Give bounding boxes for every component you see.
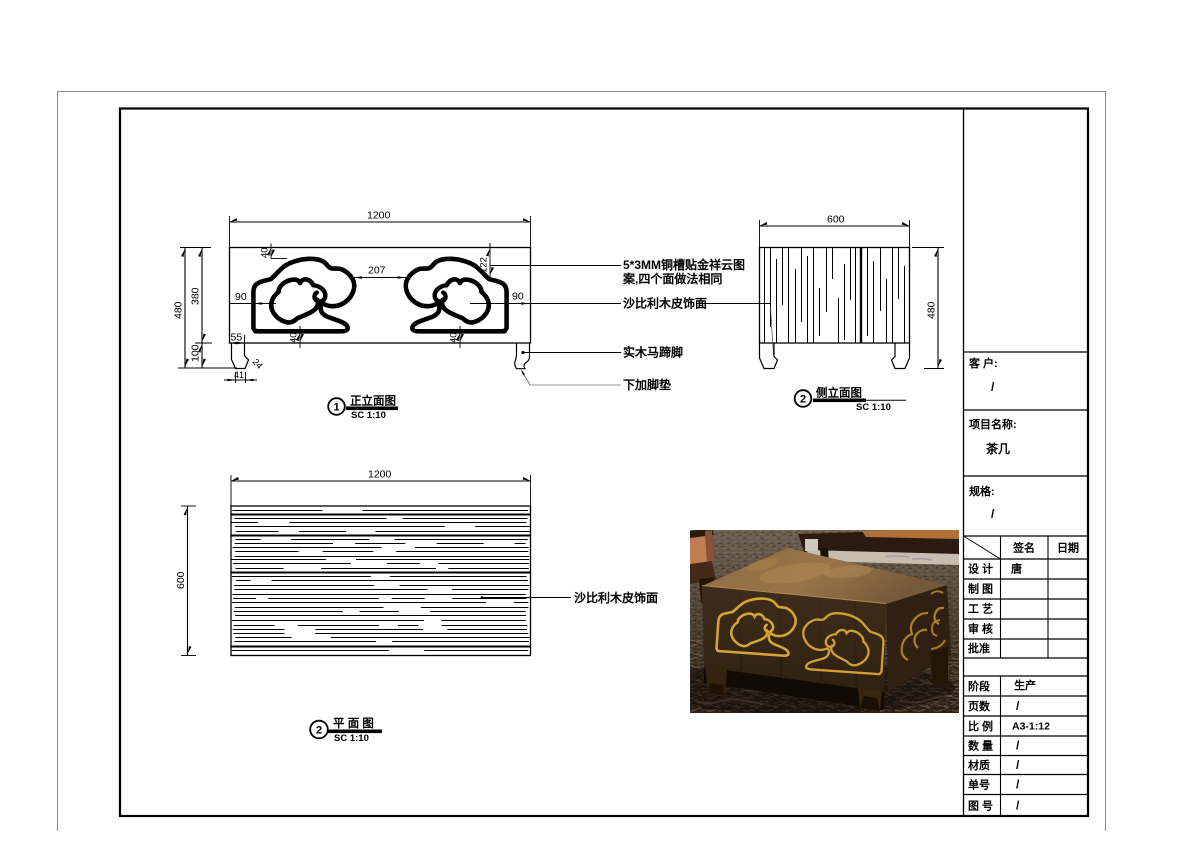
svg-text:侧立面图: 侧立面图 xyxy=(816,386,862,400)
svg-text:正立面图: 正立面图 xyxy=(350,394,396,408)
svg-text:480: 480 xyxy=(173,301,185,319)
svg-text:A3-1:12: A3-1:12 xyxy=(1012,721,1050,733)
svg-text:40: 40 xyxy=(449,332,460,343)
svg-text:沙比利木皮饰面: 沙比利木皮饰面 xyxy=(623,296,707,311)
svg-text:比 例: 比 例 xyxy=(968,719,993,733)
svg-text:1200: 1200 xyxy=(367,210,391,222)
svg-text:/: / xyxy=(991,380,995,394)
svg-text:页数: 页数 xyxy=(968,699,991,713)
svg-text:90: 90 xyxy=(235,291,247,303)
svg-text:下加脚垫: 下加脚垫 xyxy=(623,377,671,392)
svg-text:55: 55 xyxy=(231,332,243,344)
svg-text:90: 90 xyxy=(512,291,524,303)
svg-text:规格:: 规格: xyxy=(969,484,995,498)
svg-text:日期: 日期 xyxy=(1057,541,1079,555)
svg-text:380: 380 xyxy=(190,287,202,305)
svg-text:审 核: 审 核 xyxy=(968,622,993,636)
svg-text:数 量: 数 量 xyxy=(968,739,993,753)
svg-text:签名: 签名 xyxy=(1012,541,1035,555)
svg-text:工 艺: 工 艺 xyxy=(968,602,993,616)
svg-text:实木马蹄脚: 实木马蹄脚 xyxy=(623,345,683,360)
svg-text:41: 41 xyxy=(234,370,244,380)
svg-text:阶段: 阶段 xyxy=(968,679,990,693)
svg-text:/: / xyxy=(1016,799,1020,813)
svg-text:1: 1 xyxy=(333,402,339,414)
svg-text:沙比利木皮饰面: 沙比利木皮饰面 xyxy=(574,590,658,605)
svg-text:/: / xyxy=(1016,758,1020,772)
svg-text:图 号: 图 号 xyxy=(968,800,993,813)
svg-text:207: 207 xyxy=(368,265,386,277)
svg-text:平 面 图: 平 面 图 xyxy=(333,716,374,730)
svg-text:设 计: 设 计 xyxy=(968,562,993,576)
svg-text:2: 2 xyxy=(316,725,322,737)
svg-text:批准: 批准 xyxy=(968,641,990,655)
svg-text:材质: 材质 xyxy=(968,758,990,772)
svg-text:40: 40 xyxy=(260,247,271,258)
svg-text:客 户:: 客 户: xyxy=(968,356,998,370)
svg-text:制 图: 制 图 xyxy=(968,582,993,596)
svg-text:5*3MM铜槽贴金祥云图: 5*3MM铜槽贴金祥云图 xyxy=(623,257,745,272)
svg-text:SC 1:10: SC 1:10 xyxy=(351,410,386,421)
svg-text:唐: 唐 xyxy=(1011,562,1022,576)
svg-text:茶几: 茶几 xyxy=(985,441,1010,456)
svg-text:/: / xyxy=(991,507,995,521)
svg-text:生产: 生产 xyxy=(1014,678,1036,692)
svg-text:/: / xyxy=(1016,778,1020,792)
svg-text:/: / xyxy=(1016,699,1020,713)
svg-text:/: / xyxy=(1016,739,1020,753)
svg-text:480: 480 xyxy=(926,301,938,319)
svg-text:40: 40 xyxy=(289,332,300,343)
svg-text:案,四个面做法相同: 案,四个面做法相同 xyxy=(622,271,722,286)
svg-text:100: 100 xyxy=(190,344,202,362)
svg-text:2: 2 xyxy=(800,394,806,406)
svg-text:SC 1:10: SC 1:10 xyxy=(334,733,369,744)
svg-text:600: 600 xyxy=(827,214,845,226)
svg-text:单号: 单号 xyxy=(968,778,990,792)
svg-text:600: 600 xyxy=(175,571,187,589)
svg-text:24: 24 xyxy=(251,357,265,371)
svg-text:1200: 1200 xyxy=(368,469,392,481)
svg-text:项目名称:: 项目名称: xyxy=(969,417,1017,431)
svg-text:122: 122 xyxy=(479,257,490,273)
svg-text:SC 1:10: SC 1:10 xyxy=(856,402,891,413)
